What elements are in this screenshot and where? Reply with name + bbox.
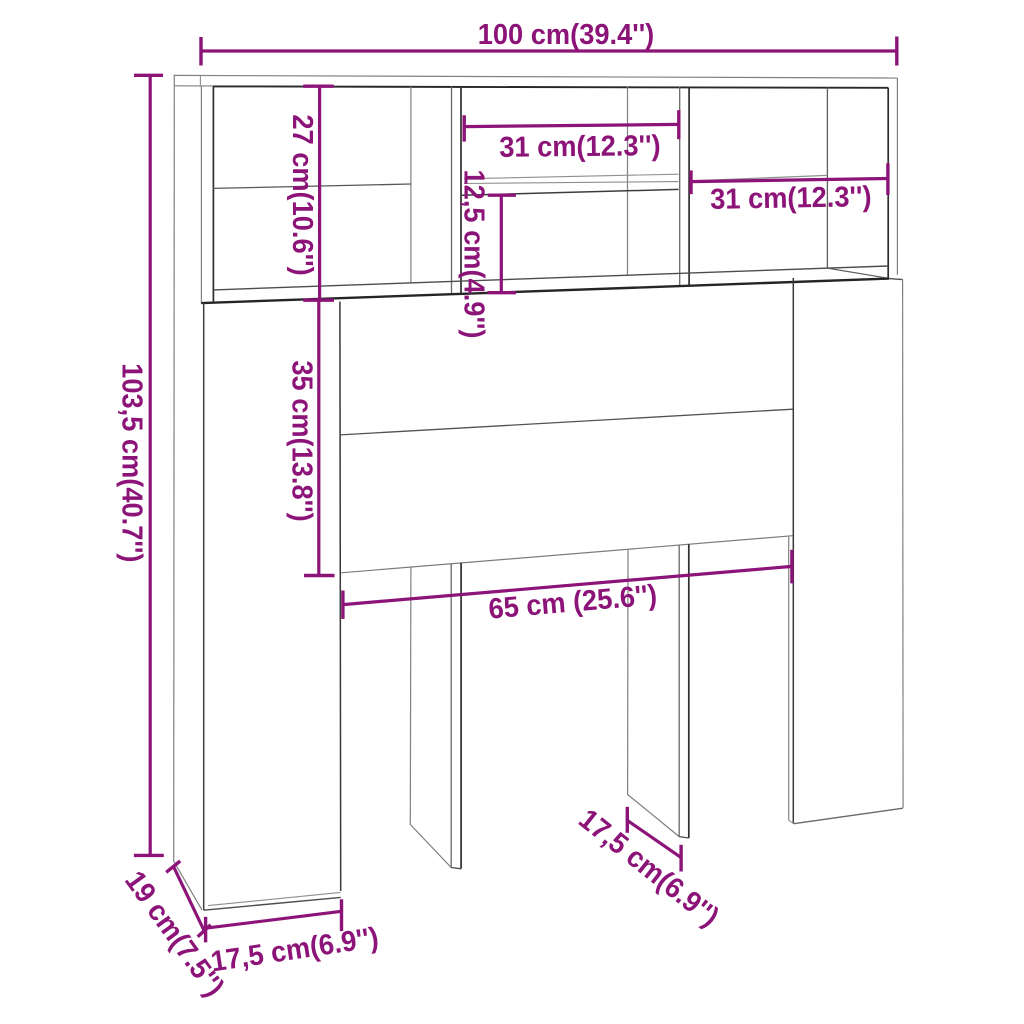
svg-text:31 cm(12.3''): 31 cm(12.3''): [710, 180, 872, 215]
svg-text:12,5 cm(4.9''): 12,5 cm(4.9''): [458, 170, 490, 339]
svg-text:35 cm(13.8''): 35 cm(13.8''): [286, 360, 318, 521]
svg-text:103,5 cm(40.7''): 103,5 cm(40.7''): [116, 363, 148, 562]
svg-text:31 cm(12.3''): 31 cm(12.3''): [499, 129, 661, 163]
svg-text:27 cm(10.6''): 27 cm(10.6''): [287, 114, 319, 275]
svg-text:100 cm(39.4''): 100 cm(39.4''): [478, 18, 655, 50]
